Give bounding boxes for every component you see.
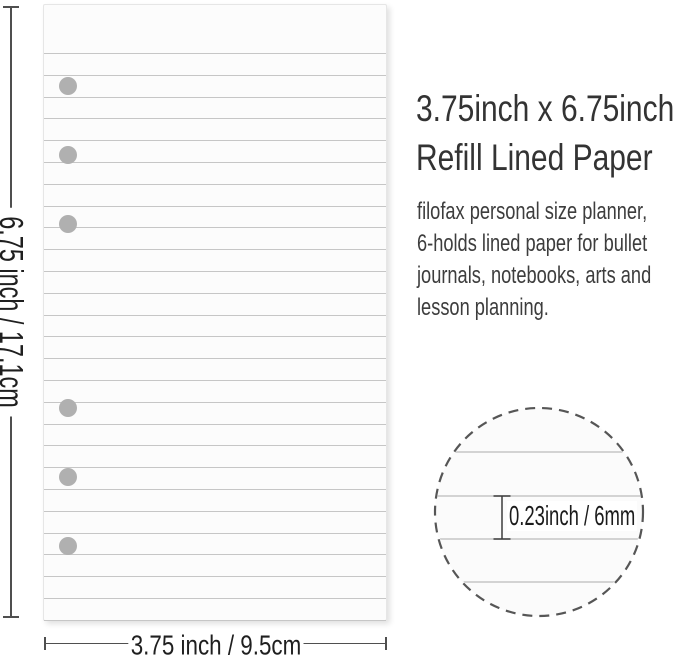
ruled-line: [44, 424, 386, 425]
punch-hole: [59, 215, 77, 233]
ruled-line: [44, 576, 386, 577]
punch-hole: [59, 146, 77, 164]
ruled-line: [44, 249, 386, 250]
ruled-line: [44, 489, 386, 490]
punch-hole: [59, 77, 77, 95]
ruled-line: [44, 380, 386, 381]
width-measurement-label: 3.75 inch / 9.5cm: [128, 629, 303, 656]
ruled-line: [44, 402, 386, 403]
ruled-line: [44, 271, 386, 272]
description-line: lesson planning.: [417, 292, 651, 324]
measure-cap-bottom: [3, 616, 19, 618]
description-line: filofax personal size planner,: [417, 196, 651, 228]
ruled-line: [44, 206, 386, 207]
punch-hole: [59, 468, 77, 486]
height-measurement-label: 6.75 inch / 17.1cm: [0, 208, 30, 416]
ruled-line: [44, 554, 386, 555]
ruled-line: [44, 53, 386, 54]
paper-sheet: [43, 4, 387, 621]
ruled-line: [44, 118, 386, 119]
ruled-line: [44, 162, 386, 163]
description-line: 6-holds lined paper for bullet: [417, 228, 651, 260]
punch-hole: [59, 537, 77, 555]
ruled-line: [44, 184, 386, 185]
detail-magnifier-circle: 0.23inch / 6mm: [433, 406, 645, 618]
product-title: 3.75inch x 6.75inch Refill Lined Paper: [416, 84, 674, 182]
ruled-line: [44, 467, 386, 468]
ruled-line: [44, 140, 386, 141]
punch-hole: [59, 399, 77, 417]
product-title-line1: 3.75inch x 6.75inch: [416, 84, 674, 133]
ruled-line: [44, 445, 386, 446]
height-measurement: 6.75 inch / 17.1cm: [3, 6, 19, 618]
ruled-line: [44, 97, 386, 98]
ruled-line: [44, 511, 386, 512]
description-line: journals, notebooks, arts and: [417, 260, 651, 292]
line-spacing-label: 0.23inch / 6mm: [507, 501, 637, 531]
ruled-line: [44, 293, 386, 294]
ruled-line: [44, 598, 386, 599]
ruled-line: [44, 336, 386, 337]
product-infographic: 6.75 inch / 17.1cm 3.75 inch / 9.5cm 3.7…: [0, 0, 679, 656]
ruled-line: [44, 227, 386, 228]
ruled-line: [44, 358, 386, 359]
product-description: filofax personal size planner, 6-holds l…: [417, 196, 651, 324]
ruled-line: [44, 620, 386, 621]
width-measurement: 3.75 inch / 9.5cm: [44, 637, 387, 650]
ruled-line: [44, 75, 386, 76]
product-title-line2: Refill Lined Paper: [416, 133, 674, 182]
ruled-line: [44, 315, 386, 316]
ruled-line: [44, 533, 386, 534]
measure-cap-right: [385, 637, 387, 650]
